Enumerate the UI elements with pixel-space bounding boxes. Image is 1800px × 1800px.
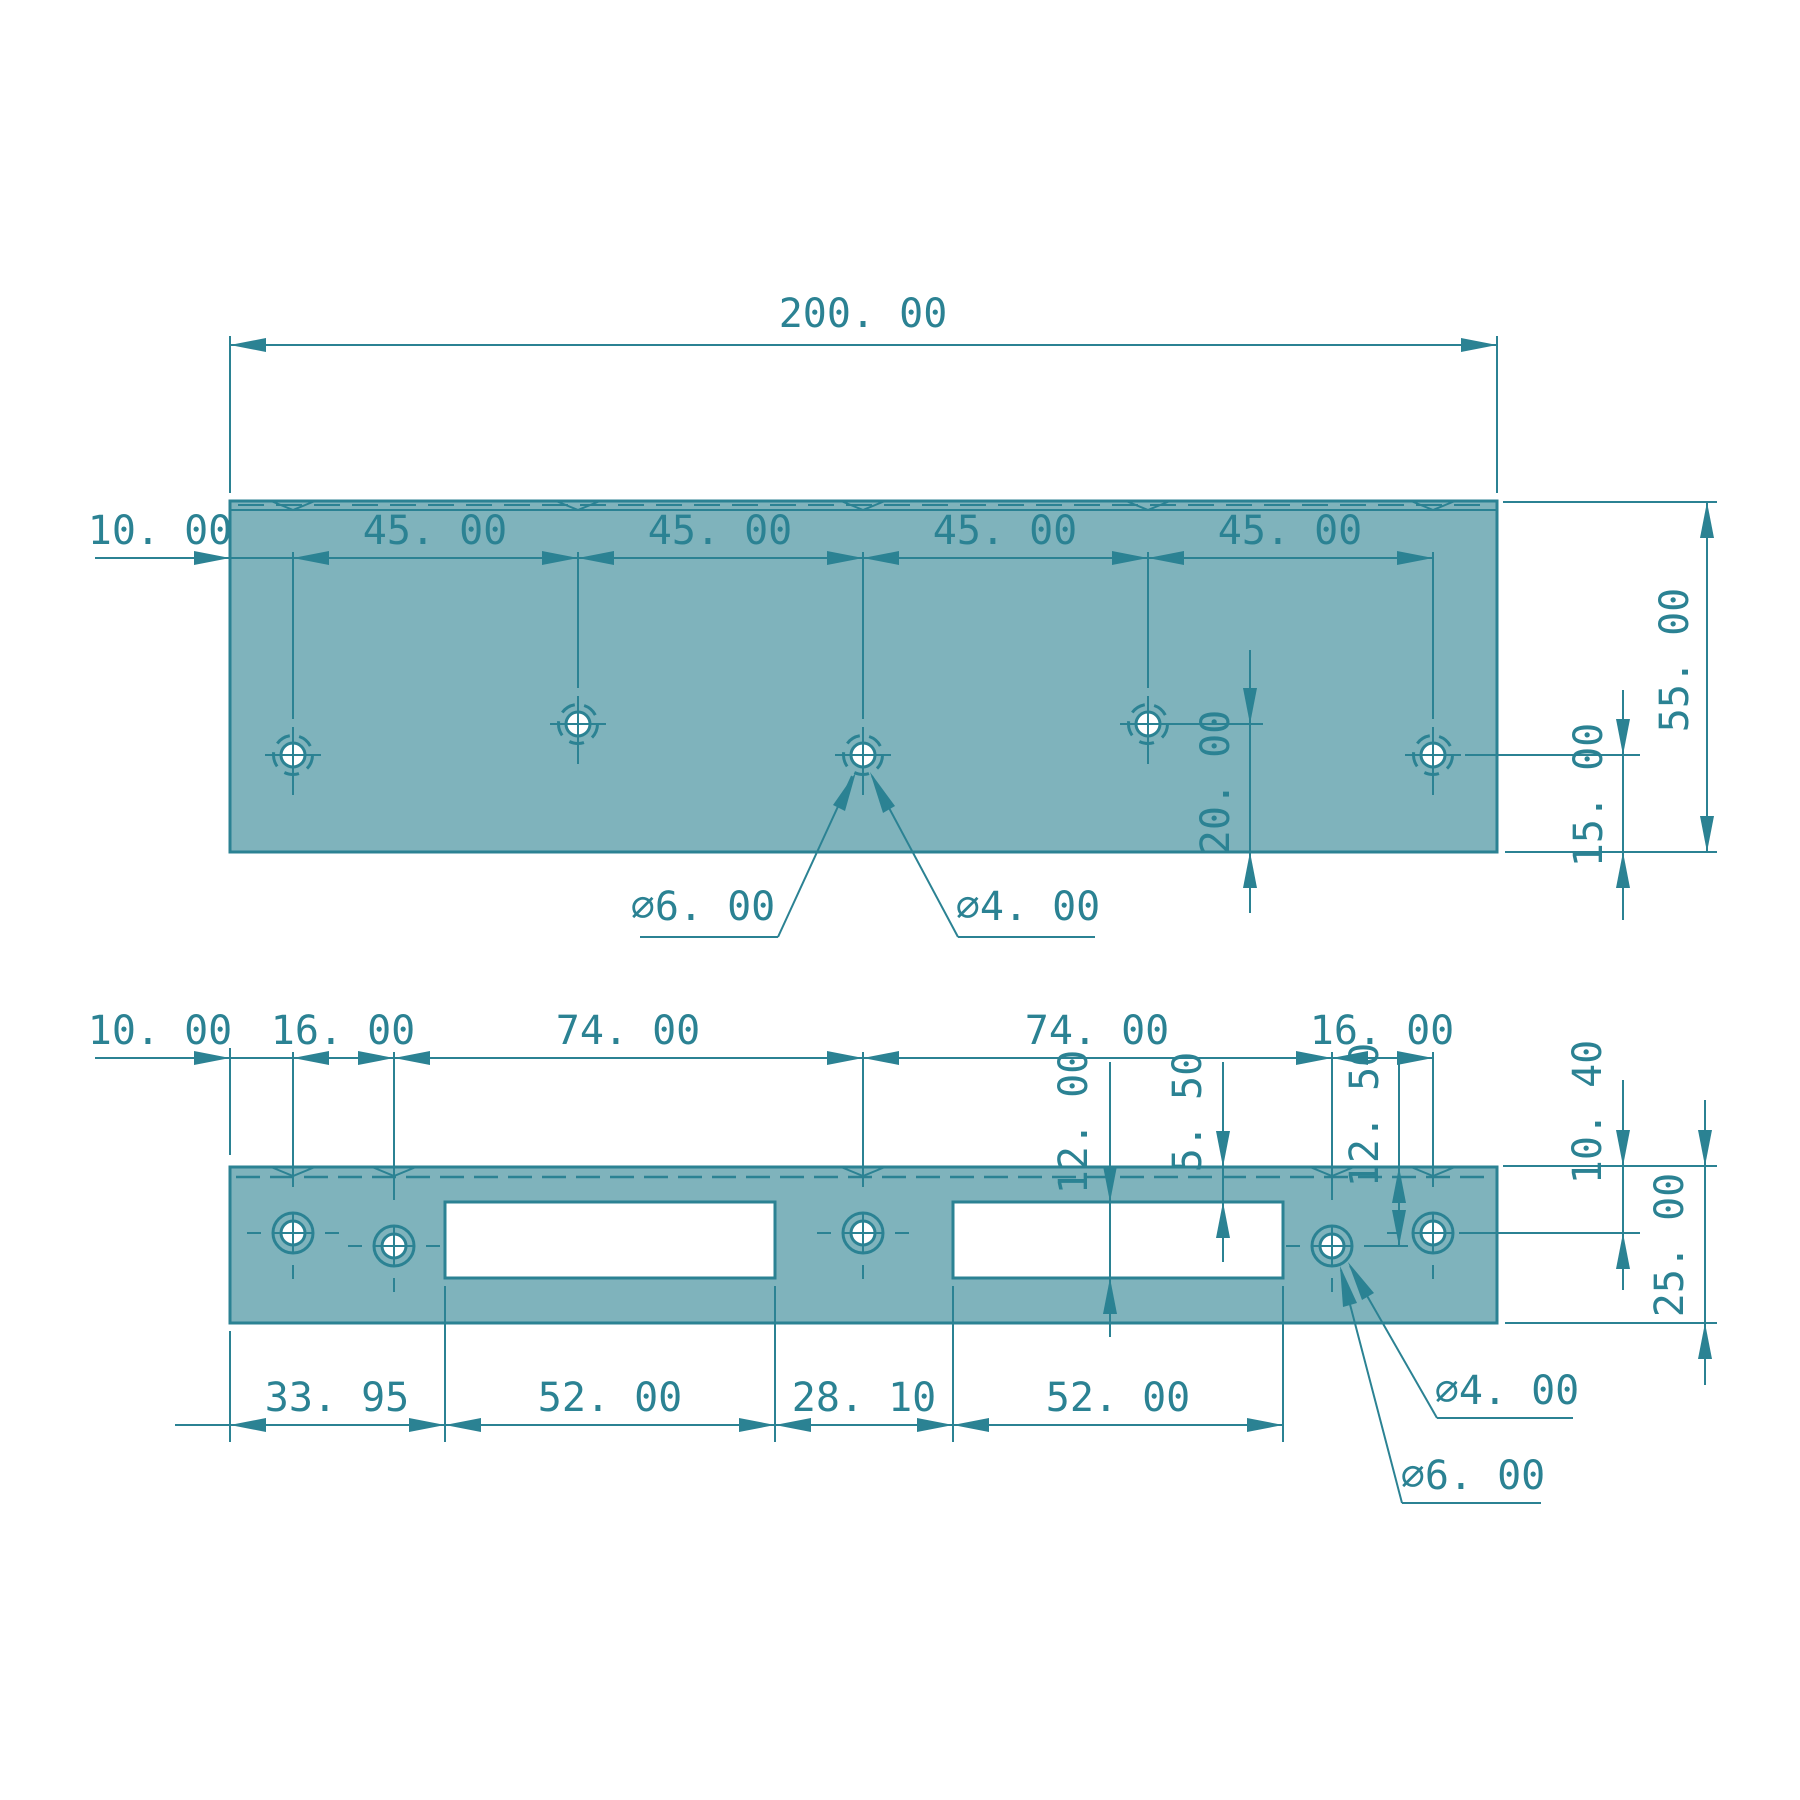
dim-label: 52. 00 <box>538 1375 683 1421</box>
dim-overall-width: 200. 00 <box>230 291 1497 493</box>
dim-label: 74. 00 <box>556 1008 701 1054</box>
dim-label: 33. 95 <box>265 1375 410 1421</box>
dim-label: 74. 00 <box>1025 1008 1170 1054</box>
dim-label: 52. 00 <box>1046 1375 1191 1421</box>
dim-label-overall-height: 55. 00 <box>1652 588 1698 733</box>
dim-label-countersink-dia: ∅6. 00 <box>1401 1453 1546 1499</box>
dim-label: 16. 00 <box>271 1008 416 1054</box>
dim-label: 28. 10 <box>792 1375 937 1421</box>
dim-label-hole-top-offset: 10. 40 <box>1565 1040 1611 1185</box>
dim-label: 45. 00 <box>363 508 508 554</box>
dim-label-slot-height: 12. 00 <box>1051 1050 1097 1195</box>
bottom-view: 10. 00 16. 00 74. 00 74. 00 16. 00 12. 0… <box>88 1008 1717 1503</box>
dim-label-hole-dia: ∅4. 00 <box>1435 1368 1580 1414</box>
dim-label-overall-width: 200. 00 <box>779 291 948 337</box>
dim-label-hole-dia: ∅4. 00 <box>956 884 1101 930</box>
dim-label-hole-edge-offset: 15. 00 <box>1566 723 1612 868</box>
technical-drawing: 200. 00 10. 00 45. 00 45. 00 45. 00 45. … <box>0 0 1800 1800</box>
deadbolt-slot <box>953 1202 1283 1278</box>
dim-label: 10. 00 <box>88 508 233 554</box>
dim-label-slot-top-offset: 5. 50 <box>1165 1052 1211 1172</box>
latch-slot <box>445 1202 775 1278</box>
dim-label: 45. 00 <box>648 508 793 554</box>
dim-label-hole-row-offset: 12. 50 <box>1342 1043 1388 1188</box>
dim-label-hole-row-offset: 20. 00 <box>1193 710 1239 855</box>
cad-drawing-canvas: 200. 00 10. 00 45. 00 45. 00 45. 00 45. … <box>0 0 1800 1800</box>
dim-label-overall-height: 25. 00 <box>1647 1173 1693 1318</box>
top-view: 200. 00 10. 00 45. 00 45. 00 45. 00 45. … <box>88 291 1717 937</box>
dim-label: 45. 00 <box>1218 508 1363 554</box>
dim-label: 10. 00 <box>88 1008 233 1054</box>
dim-label: 45. 00 <box>933 508 1078 554</box>
dim-label-countersink-dia: ∅6. 00 <box>631 884 776 930</box>
